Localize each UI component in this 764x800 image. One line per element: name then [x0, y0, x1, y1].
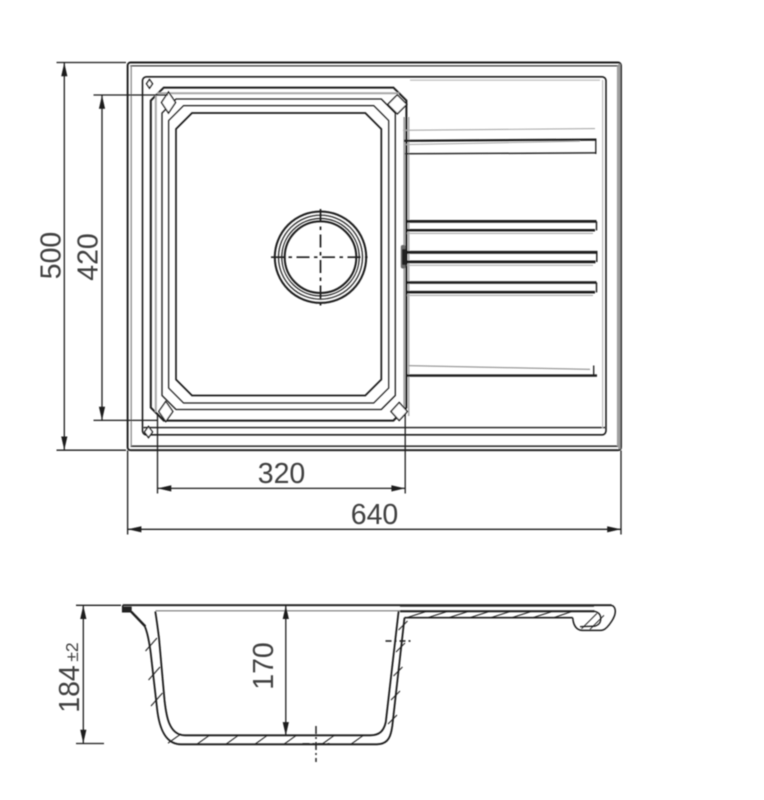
svg-text:500: 500	[36, 232, 68, 280]
svg-text:320: 320	[258, 458, 306, 490]
svg-text:420: 420	[73, 233, 105, 281]
svg-text:640: 640	[351, 499, 399, 531]
svg-text:184: 184	[54, 665, 86, 713]
svg-text:±2: ±2	[62, 642, 82, 661]
svg-text:170: 170	[248, 642, 280, 690]
